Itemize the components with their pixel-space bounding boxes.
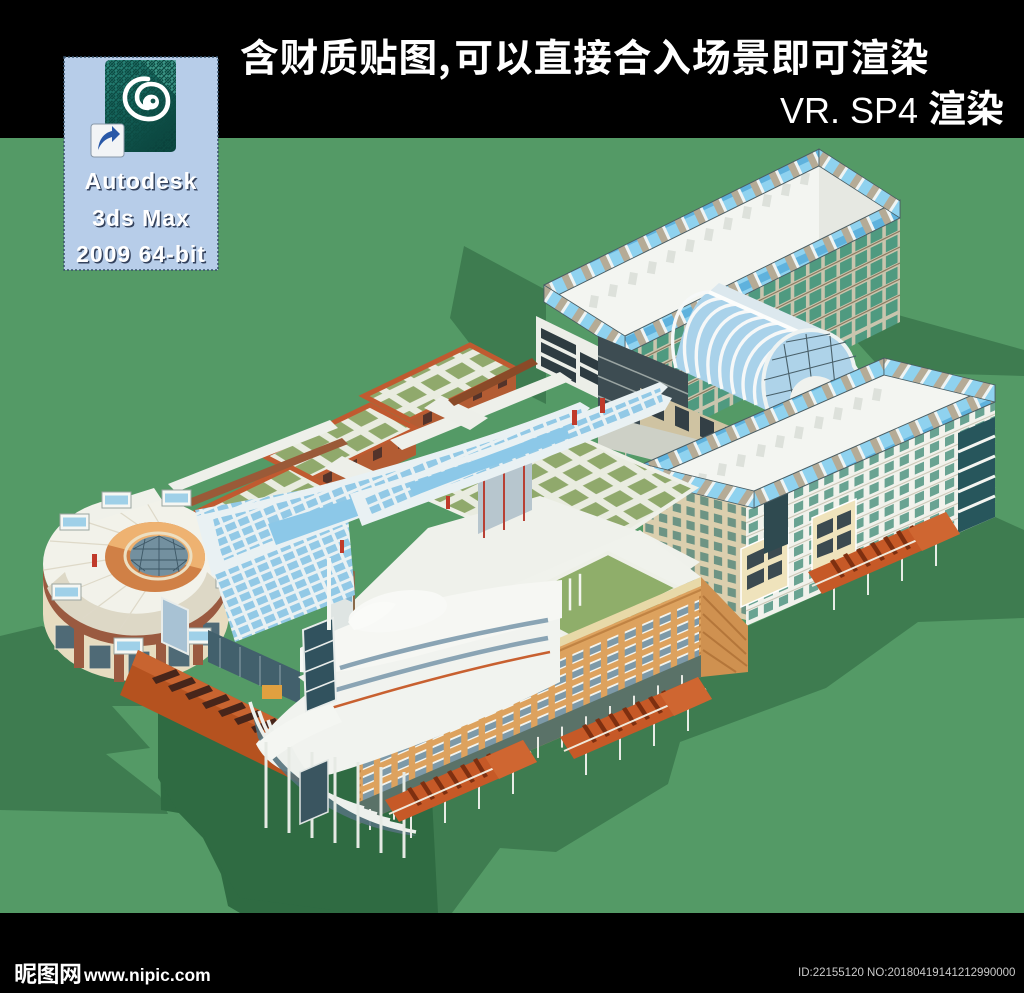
svg-text:3ds Max: 3ds Max	[92, 205, 190, 231]
svg-text:VR. SP4: VR. SP4	[780, 90, 918, 131]
svg-text:ID:22155120 NO:201804191412129: ID:22155120 NO:20180419141212990000	[798, 967, 1015, 979]
svg-text:Autodesk: Autodesk	[85, 168, 198, 194]
svg-text:www.nipic.com: www.nipic.com	[83, 965, 211, 985]
svg-text:2009 64-bit: 2009 64-bit	[76, 241, 206, 267]
